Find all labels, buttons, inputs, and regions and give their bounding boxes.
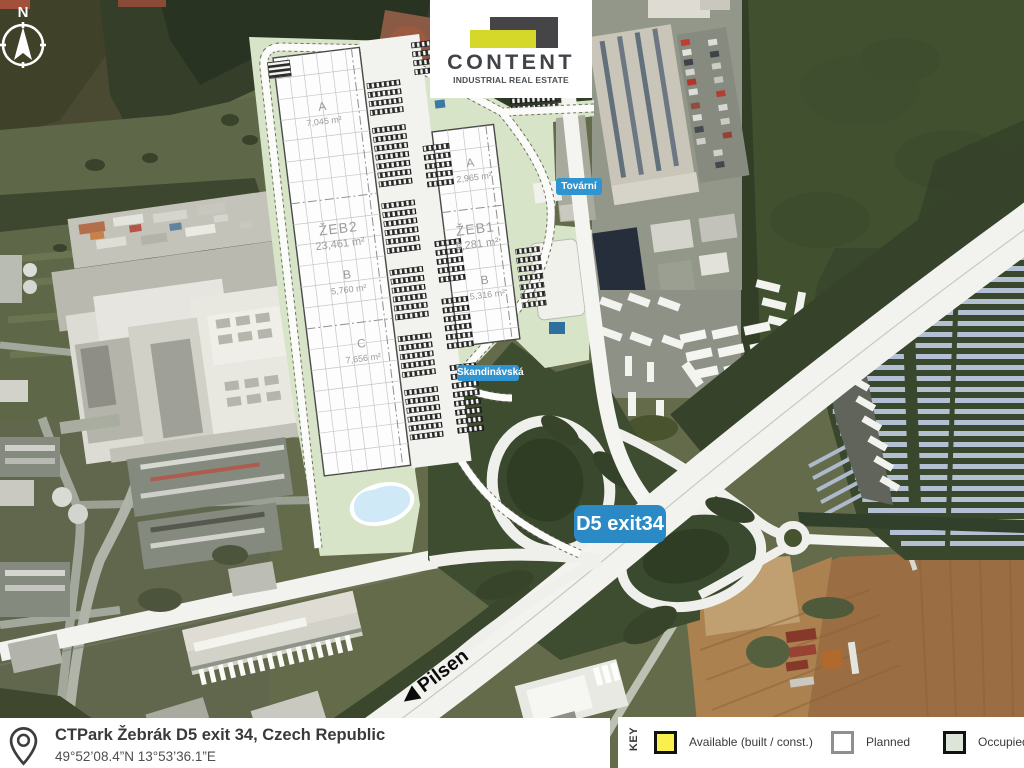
svg-text:A: A — [317, 99, 327, 114]
svg-text:A: A — [465, 155, 475, 170]
svg-text:B: B — [342, 267, 352, 282]
svg-text:B: B — [480, 272, 490, 287]
